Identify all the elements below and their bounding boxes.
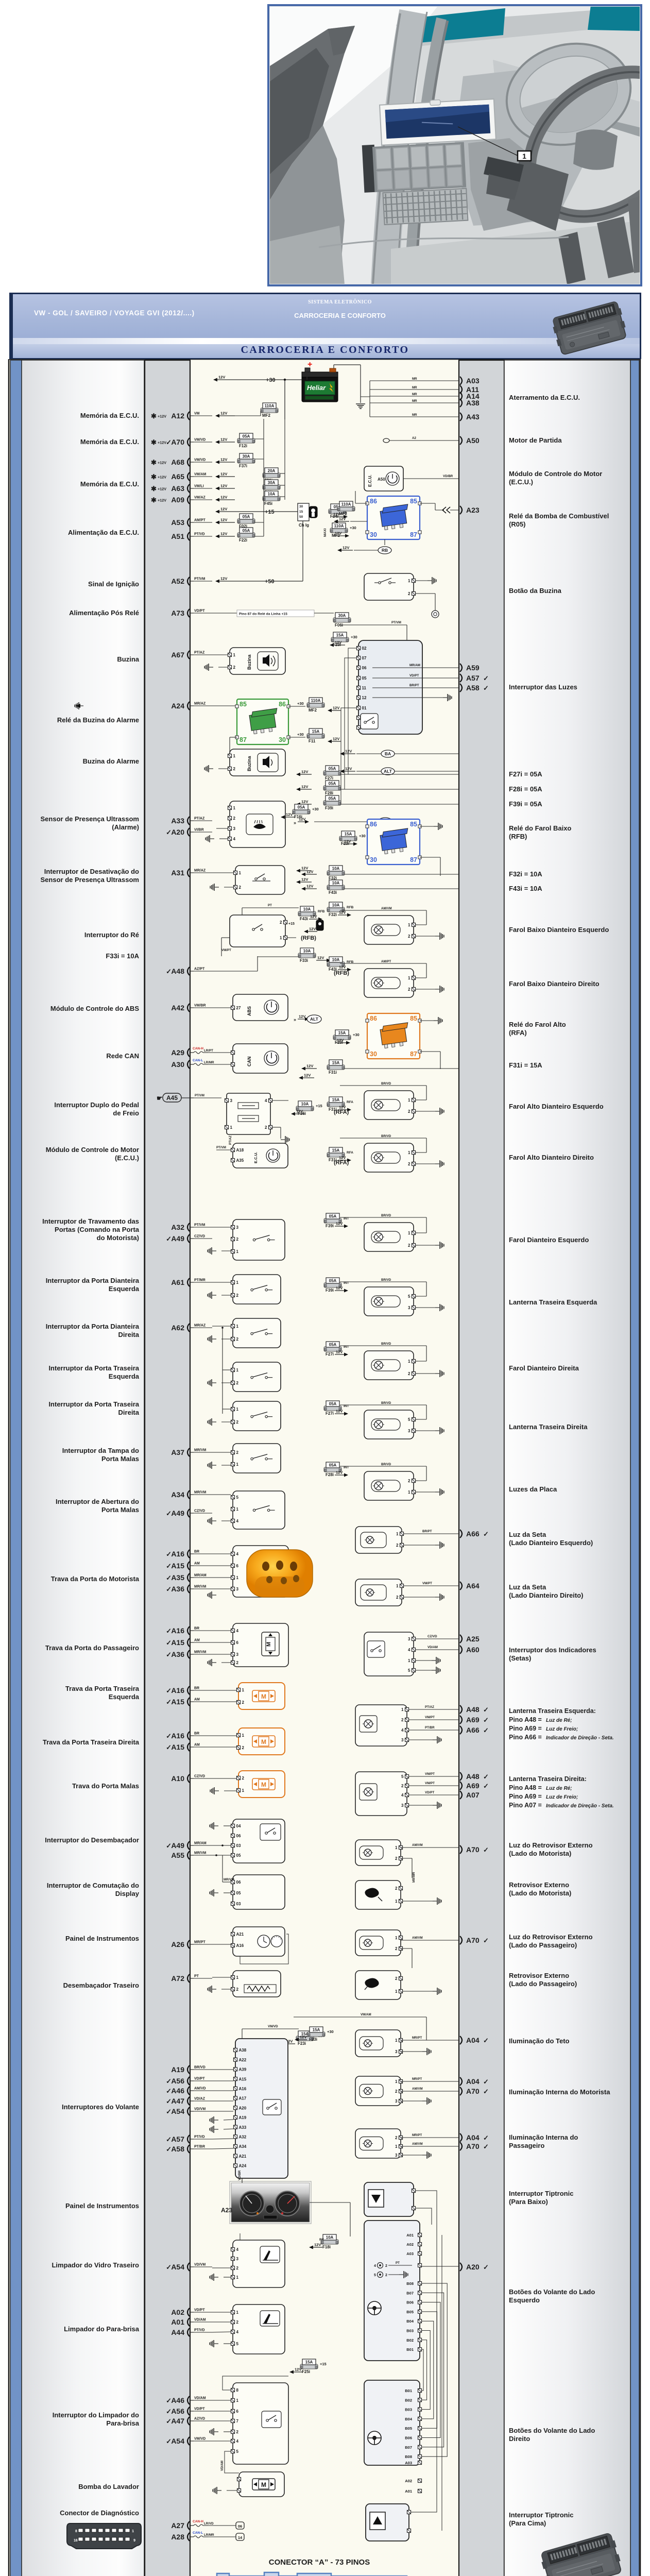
svg-text:Retrovisor Externo: Retrovisor Externo [509,1881,569,1889]
svg-text:VD/BR: VD/BR [443,474,453,478]
svg-text:AM/VM: AM/VM [412,1936,423,1940]
svg-text:5: 5 [236,2342,239,2346]
svg-text:CAN-L: CAN-L [193,2531,203,2535]
svg-text:16: 16 [74,2539,78,2543]
svg-text:A04: A04 [466,2036,480,2044]
svg-text:VM/AM: VM/AM [194,473,207,477]
svg-text:1: 1 [395,2144,398,2149]
svg-text:1: 1 [242,1688,245,1692]
svg-text:BR/VD: BR/VD [194,2066,206,2070]
svg-text:Esquerda: Esquerda [109,1372,140,1380]
svg-text:A62: A62 [171,1324,184,1332]
svg-text:12V: 12V [339,910,346,915]
svg-text:Farol Baixo Dianteiro Direito: Farol Baixo Dianteiro Direito [509,980,600,988]
svg-text:MR/PT: MR/PT [412,2133,422,2137]
svg-text:1: 1 [236,1462,239,1467]
svg-text:BR/PT: BR/PT [409,684,419,687]
svg-text:03: 03 [236,1843,241,1848]
svg-text:2: 2 [395,2089,398,2094]
svg-text:110A: 110A [265,403,275,408]
svg-text:MR/AM: MR/AM [409,664,420,667]
svg-text:Luzes da Placa: Luzes da Placa [509,1485,557,1493]
svg-text:(Alarme): (Alarme) [112,823,139,831]
svg-text:A53: A53 [171,518,184,527]
svg-text:✓: ✓ [483,1706,489,1714]
svg-text:AZ/VD: AZ/VD [194,2417,205,2421]
svg-text:+30: +30 [297,701,304,706]
svg-text:AM: AM [194,1743,200,1747]
svg-text:05A: 05A [329,796,336,801]
svg-text:12V: 12V [301,866,308,871]
svg-text:12V: 12V [220,457,227,462]
svg-text:do Motorista): do Motorista) [97,1234,139,1242]
svg-text:10A: 10A [332,957,340,962]
svg-text:A25: A25 [466,1635,480,1643]
svg-text:12V: 12V [295,2367,301,2372]
svg-text:F23i: F23i [298,2041,306,2046]
svg-text:PT/VM: PT/VM [216,1146,226,1149]
svg-text:BR/VD: BR/VD [381,1401,391,1405]
svg-text:12V: 12V [286,812,293,817]
svg-text:✱: ✱ [151,438,157,446]
svg-text:30: 30 [279,736,286,743]
svg-text:2: 2 [408,1109,410,1114]
svg-text:MF2: MF2 [339,512,348,516]
svg-text:F39i = 05A: F39i = 05A [509,800,542,808]
svg-text:Esquerda: Esquerda [109,1285,140,1293]
svg-text:VM/BR: VM/BR [194,1004,206,1008]
svg-text:2: 2 [236,1337,239,1342]
svg-text:MAXI: MAXI [323,529,327,537]
svg-text:F27i: F27i [326,1352,334,1357]
svg-text:Sensor de Presença Ultrassom: Sensor de Presença Ultrassom [41,815,139,823]
svg-text:+30: +30 [350,526,356,530]
svg-text:MF2: MF2 [309,708,317,713]
svg-text:2: 2 [408,987,410,992]
svg-text:A38: A38 [466,399,480,407]
svg-text:Luz de Ré;: Luz de Ré; [546,1786,572,1791]
svg-text:MR/VM: MR/VM [194,1449,207,1452]
svg-text:Interruptor Tiptronic: Interruptor Tiptronic [509,2190,573,2197]
svg-text:02: 02 [362,646,367,651]
svg-text:A30: A30 [171,1060,184,1069]
svg-text:A01: A01 [406,2233,414,2238]
svg-text:Retrovisor Externo: Retrovisor Externo [509,1972,569,1979]
svg-text:12V: 12V [335,640,341,645]
svg-text:+30: +30 [359,834,366,838]
svg-text:(R05): (R05) [509,520,526,528]
svg-text:2: 2 [385,2274,387,2277]
svg-text:Porta Malas: Porta Malas [101,1506,139,1514]
svg-text:01: 01 [362,706,367,710]
svg-text:Para-brisa: Para-brisa [106,2419,139,2427]
svg-text:12V: 12V [306,1064,313,1069]
svg-text:A58: A58 [171,2145,184,2153]
svg-text:2: 2 [395,1946,398,1951]
svg-text:1: 1 [408,923,410,927]
svg-text:MR/AM: MR/AM [194,1842,207,1845]
svg-text:05A: 05A [329,766,336,771]
svg-text:12V: 12V [220,472,227,477]
svg-text:+15: +15 [316,1104,322,1108]
svg-text:A35: A35 [236,1158,244,1163]
svg-text:✓: ✓ [483,2263,489,2271]
svg-text:A45: A45 [166,1094,178,1101]
svg-text:A42: A42 [171,1004,184,1012]
svg-text:05A: 05A [329,1214,337,1218]
svg-text:Porta Malas: Porta Malas [101,1455,139,1463]
svg-text:F23i: F23i [309,2037,317,2042]
svg-text:12V: 12V [301,800,308,804]
svg-text:(Para Baixo): (Para Baixo) [509,2198,548,2206]
svg-text:B03: B03 [406,2329,414,2333]
svg-text:12V: 12V [220,495,227,500]
svg-text:Portas (Comando na Porta: Portas (Comando na Porta [55,1226,140,1233]
svg-text:Luz de Freio;: Luz de Freio; [546,1794,578,1800]
svg-text:30A: 30A [338,613,346,618]
svg-text:LR/MR: LR/MR [204,2533,214,2537]
svg-text:F32i = 10A: F32i = 10A [509,870,542,878]
svg-text:MR/AZ: MR/AZ [194,702,206,706]
svg-text:50: 50 [299,515,303,519]
svg-text:A36: A36 [171,1585,184,1593]
svg-text:B01: B01 [406,2347,414,2352]
svg-text:1: 1 [236,1324,239,1329]
svg-text:1: 1 [132,2530,134,2533]
svg-text:VM/LI: VM/LI [194,485,204,488]
svg-text:VD/AM: VD/AM [220,2461,224,2471]
svg-text:1: 1 [408,1098,410,1103]
svg-text:MR/VM: MR/VM [194,1585,207,1589]
svg-text:VD/BR: VD/BR [238,2170,242,2180]
svg-text:BA: BA [385,751,391,756]
svg-text:MR/VM: MR/VM [224,1878,234,1882]
svg-text:VM/PT: VM/PT [221,948,231,952]
svg-text:✓: ✓ [483,1782,489,1790]
svg-text:✓: ✓ [483,1937,489,1944]
svg-text:A70: A70 [466,2142,480,2150]
svg-text:06: 06 [236,1834,241,1838]
svg-text:1: 1 [408,579,410,583]
svg-text:A57: A57 [171,2135,184,2143]
svg-text:MR: MR [412,399,417,403]
svg-text:1: 1 [401,1707,404,1712]
svg-text:12V: 12V [343,546,349,550]
svg-text:Luz da Seta: Luz da Seta [509,1583,546,1591]
svg-text:Interruptor da Porta Dianteira: Interruptor da Porta Dianteira [46,1323,140,1330]
svg-text:VD/AM: VD/AM [194,2318,206,2322]
svg-text:A50: A50 [378,477,385,482]
svg-text:RFB: RFB [347,906,354,909]
svg-text:PT/BR: PT/BR [425,1726,435,1730]
svg-text:CONECTOR “A” - 73 PINOS: CONECTOR “A” - 73 PINOS [269,2558,370,2567]
svg-text:M: M [261,1781,266,1788]
svg-text:RFB: RFB [318,910,325,913]
svg-text:Iluminação Interna do: Iluminação Interna do [509,2133,578,2141]
svg-text:2: 2 [408,1243,410,1248]
svg-text:5: 5 [401,1774,404,1779]
svg-text:2: 2 [396,1595,399,1600]
svg-text:A34: A34 [239,2144,247,2149]
svg-text:1: 1 [233,754,236,758]
svg-text:Aterramento da E.C.U.: Aterramento da E.C.U. [509,394,580,401]
svg-text:15A: 15A [336,633,344,637]
svg-text:MR/AM: MR/AM [194,1574,207,1578]
svg-text:A03: A03 [466,377,480,385]
svg-text:CAN: CAN [247,1057,252,1067]
svg-text:+30: +30 [351,635,357,639]
svg-text:INT: INT [344,1466,349,1469]
svg-text:B02: B02 [406,2338,414,2343]
svg-text:4: 4 [236,1629,239,1633]
svg-text:15A: 15A [313,2027,320,2032]
svg-text:Farol Dianteiro Direita: Farol Dianteiro Direita [509,1364,579,1372]
svg-text:ABS: ABS [247,1006,252,1016]
svg-text:30A: 30A [268,480,276,485]
svg-text:✱: ✱ [151,473,157,481]
svg-text:30A: 30A [243,454,250,459]
svg-text:Direita: Direita [118,1331,140,1338]
svg-text:A27: A27 [171,2521,184,2530]
svg-text:+15: +15 [288,922,295,926]
svg-text:✓: ✓ [483,1846,489,1854]
svg-text:PT/VD: PT/VD [194,2136,205,2139]
svg-text:VM/PT: VM/PT [425,1772,435,1776]
svg-text:A47: A47 [171,2097,184,2105]
svg-text:85: 85 [410,1015,417,1022]
svg-text:✓: ✓ [483,1716,489,1724]
svg-text:87: 87 [410,856,417,863]
svg-text:MR/BR: MR/BR [412,1872,415,1883]
svg-text:Pino A66 =: Pino A66 = [509,1734,542,1741]
svg-text:VI/BR: VI/BR [194,828,204,832]
svg-text:VM/AM: VM/AM [361,2013,371,2016]
svg-text:PT/AZ: PT/AZ [194,817,205,821]
svg-text:A03: A03 [406,2251,414,2256]
svg-text:2: 2 [280,920,282,925]
svg-text:2: 2 [408,1371,410,1376]
svg-text:Lanterna Traseira Esquerda:: Lanterna Traseira Esquerda: [509,1707,596,1715]
svg-text:12V: 12V [220,507,227,512]
svg-text:A20: A20 [171,828,184,836]
svg-text:1: 1 [408,1658,410,1663]
svg-text:PT/AZ: PT/AZ [425,1705,434,1709]
svg-text:BR/VD: BR/VD [381,1082,391,1086]
svg-text:Passageiro: Passageiro [509,2142,544,2149]
svg-text:RFA: RFA [347,1100,353,1104]
svg-text:5: 5 [236,1495,239,1500]
svg-text:1: 1 [236,2275,239,2280]
svg-text:2: 2 [236,1450,239,1455]
svg-text:12V: 12V [314,2243,321,2247]
svg-text:1: 1 [395,1899,398,1904]
svg-text:A02: A02 [406,2242,414,2247]
svg-text:15A: 15A [312,729,320,734]
svg-text:✓: ✓ [483,2134,489,2142]
svg-text:12V: 12V [301,785,308,789]
svg-text:Memória da E.C.U.: Memória da E.C.U. [80,412,139,419]
svg-text:Luz da Seta: Luz da Seta [509,1531,546,1538]
svg-text:86: 86 [370,821,377,828]
svg-text:A18: A18 [236,1148,244,1153]
svg-text:2: 2 [395,1886,398,1891]
svg-text:2: 2 [385,2264,387,2268]
svg-text:Lanterna Traseira Direita:: Lanterna Traseira Direita: [509,1775,587,1783]
svg-text:F39i: F39i [326,1288,334,1293]
svg-text:12: 12 [362,696,367,700]
svg-text:B06: B06 [406,2300,414,2305]
svg-text:Indicador de Direção - Seta.: Indicador de Direção - Seta. [546,1735,614,1741]
svg-text:✱: ✱ [151,412,157,420]
svg-text:VD/PT: VD/PT [409,674,419,677]
svg-text:+30: +30 [327,2029,334,2034]
svg-text:05A: 05A [329,1401,337,1406]
svg-text:3: 3 [408,1637,410,1641]
svg-text:4: 4 [401,1793,404,1798]
svg-text:1: 1 [236,1575,239,1580]
svg-text:1: 1 [236,1368,239,1372]
svg-text:Interruptor do Ré: Interruptor do Ré [84,931,139,939]
svg-text:Interruptores do Volante: Interruptores do Volante [62,2103,139,2111]
svg-text:A50: A50 [466,436,480,445]
svg-text:✓: ✓ [483,1726,489,1734]
svg-text:Iluminação Interna do Motorist: Iluminação Interna do Motorista [509,2088,610,2096]
svg-text:A70: A70 [466,1936,480,1944]
svg-text:F27i: F27i [326,1411,334,1416]
svg-text:F22i: F22i [239,538,247,543]
svg-text:3: 3 [401,1803,404,1808]
svg-text:2: 2 [233,816,236,821]
svg-text:Trava da Porta do Passageiro: Trava da Porta do Passageiro [45,1644,139,1652]
svg-text:✓: ✓ [483,2143,489,2150]
svg-text:A56: A56 [171,2077,184,2085]
svg-text:CAN-H: CAN-H [193,2520,203,2523]
svg-text:Buzina: Buzina [247,756,252,771]
svg-text:05: 05 [362,676,367,681]
svg-text:11: 11 [362,686,367,690]
svg-text:A72: A72 [171,1974,184,1982]
svg-text:A31: A31 [171,869,184,877]
svg-text:A61: A61 [171,1278,184,1286]
svg-text:F37i: F37i [239,464,247,468]
svg-text:A46: A46 [171,2396,184,2404]
svg-text:BR: BR [194,1627,199,1631]
svg-text:A38: A38 [239,2048,247,2053]
svg-text:Pino A48 =: Pino A48 = [509,1716,542,1723]
svg-text:MR: MR [412,413,417,417]
svg-text:VM/VD: VM/VD [194,2437,206,2441]
svg-text:2: 2 [236,2430,239,2434]
svg-text:05A: 05A [243,434,250,438]
svg-text:✓: ✓ [483,1530,489,1538]
svg-text:Botões do Volante do Lado: Botões do Volante do Lado [509,2288,595,2296]
svg-text:12V: 12V [301,770,308,774]
svg-text:Painel de Instrumentos: Painel de Instrumentos [65,2202,139,2210]
svg-text:VD/PT: VD/PT [194,2408,205,2411]
svg-text:+30: +30 [266,377,276,383]
svg-text:2: 2 [236,1987,239,1992]
svg-text:Interruptor dos Indicadores: Interruptor dos Indicadores [509,1646,596,1654]
svg-text:2: 2 [395,1856,398,1861]
svg-text:MR/AZ: MR/AZ [194,869,206,873]
svg-text:2: 2 [408,1162,410,1166]
svg-text:Motor de Partida: Motor de Partida [509,436,562,444]
svg-text:A01: A01 [405,2489,412,2494]
svg-text:12V: 12V [317,956,324,960]
svg-text:Conector de Diagnóstico: Conector de Diagnóstico [60,2509,139,2517]
svg-text:Luz de Ré;: Luz de Ré; [546,1718,572,1723]
svg-text:✓: ✓ [483,2088,489,2095]
svg-text:CAN-L: CAN-L [193,1059,203,1062]
svg-text:87: 87 [410,531,417,538]
svg-text:2: 2 [265,1125,267,1130]
svg-text:AM/VM: AM/VM [412,2142,423,2146]
svg-text:Farol Dianteiro Esquerdo: Farol Dianteiro Esquerdo [509,1236,589,1244]
svg-text:PT: PT [268,904,272,907]
svg-text:Display: Display [115,1890,140,1897]
svg-text:A09: A09 [171,496,184,504]
svg-text:LR/MR: LR/MR [204,1061,214,1064]
svg-text:(RFB): (RFB) [509,833,527,840]
svg-text:MR/VM: MR/VM [194,1651,207,1654]
svg-text:A55: A55 [171,1851,184,1859]
svg-text:✱: ✱ [151,459,157,466]
svg-text:1: 1 [242,1733,245,1738]
svg-text:12V: 12V [339,517,346,521]
svg-text:AM/PT: AM/PT [194,519,206,522]
svg-text:PT/AZ: PT/AZ [194,651,205,655]
svg-text:12V: 12V [335,531,341,536]
svg-text:ALT: ALT [384,769,392,774]
svg-text:A12: A12 [171,412,184,420]
svg-text:INT: INT [344,1217,349,1221]
svg-text:Indicador de Direção - Seta.: Indicador de Direção - Seta. [546,1803,614,1809]
svg-text:(Para Cima): (Para Cima) [509,2519,546,2527]
svg-text:05A: 05A [329,1463,337,1467]
svg-text:PT/VM: PT/VM [194,1224,206,1227]
svg-text:F45i: F45i [264,501,272,506]
svg-text:1: 1 [408,976,410,980]
svg-text:A23: A23 [466,506,480,514]
svg-text:A15: A15 [171,1562,184,1570]
svg-text:A16: A16 [171,1686,184,1694]
svg-text:A03: A03 [405,2461,412,2465]
svg-text:PT/VD: PT/VD [194,533,205,536]
svg-text:12V: 12V [333,706,339,710]
svg-text:A16: A16 [171,1626,184,1635]
svg-text:A43: A43 [466,413,480,421]
svg-text:A58: A58 [466,684,480,692]
svg-text:10A: 10A [301,1101,309,1106]
svg-text:3: 3 [395,2153,398,2158]
svg-text:✓: ✓ [483,684,489,692]
svg-text:F25i: F25i [302,2369,310,2374]
svg-text:04: 04 [236,1824,241,1828]
svg-text:A70: A70 [466,2087,480,2095]
svg-text:A70: A70 [171,438,184,446]
svg-text:1: 1 [395,1845,398,1850]
svg-text:Interruptor da Porta Dianteira: Interruptor da Porta Dianteira [46,1277,140,1284]
svg-text:Lanterna Traseira Esquerda: Lanterna Traseira Esquerda [509,1298,597,1306]
svg-text:F39i: F39i [325,806,333,810]
svg-text:Buzina do Alarme: Buzina do Alarme [83,757,139,765]
svg-text:+30: +30 [353,1032,360,1037]
svg-text:AM/VD: AM/VD [194,2087,206,2091]
svg-text:05A: 05A [329,781,336,786]
svg-text:A73: A73 [171,609,184,617]
svg-text:BR/PT: BR/PT [422,1530,432,1533]
svg-text:12V: 12V [310,914,317,919]
